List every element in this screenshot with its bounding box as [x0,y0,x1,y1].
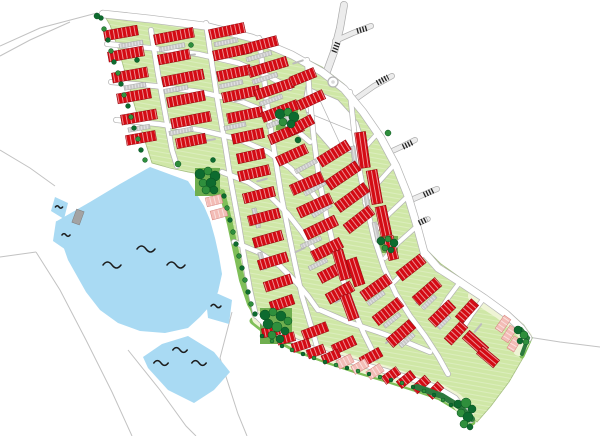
tree [175,161,181,167]
tree [260,334,264,338]
tree [287,120,295,128]
tree [195,169,205,179]
tree [411,385,415,389]
tree [345,366,349,370]
tree [517,338,523,344]
field-line [528,337,600,347]
masterplan-map [0,0,600,436]
tree [334,363,338,367]
tree [189,43,194,48]
tree [143,158,148,163]
tree [269,308,277,316]
tree [109,49,114,54]
tree [222,194,227,199]
field-line [0,22,70,56]
tree [234,242,239,247]
tree [132,126,137,131]
tree [367,372,371,376]
tree [211,158,216,163]
tree [102,27,107,32]
tree [382,245,388,251]
tree [422,389,426,393]
tree [136,137,141,142]
tree [280,344,284,348]
tree [263,319,273,329]
tree [276,335,284,343]
tree [390,239,398,247]
tree [240,266,245,271]
tree [389,378,393,382]
tree [279,118,287,126]
tree [237,254,242,259]
field-line [0,150,55,186]
tree [385,236,391,242]
tree [356,369,360,373]
tree [210,186,218,194]
tree [290,348,294,352]
tree [441,398,445,402]
tree [284,317,292,325]
tree [94,13,100,19]
tree [268,331,276,339]
tree [270,339,274,343]
tree [116,71,121,76]
tree [377,237,385,245]
tree [112,60,117,65]
tree [272,322,282,332]
tree [520,331,528,339]
tree [202,186,210,194]
tree [119,82,124,87]
tree [243,278,248,283]
roundabout-island [331,80,335,84]
tree [467,424,473,430]
tree [225,206,230,211]
tree [301,352,305,356]
tree [275,109,285,119]
tree [139,148,144,153]
tree [126,104,131,109]
field-line [0,252,36,257]
tree [378,375,382,379]
tree [385,130,391,136]
tree [129,115,134,120]
tree [388,247,394,253]
tree [253,312,258,317]
tree [295,137,301,143]
field-line [0,13,97,46]
tree [246,290,251,295]
tree [312,356,316,360]
tree [449,403,453,407]
tree [468,405,476,413]
special-building [205,194,223,207]
external-road [357,76,392,98]
masterplan-svg [0,0,600,436]
tree [106,38,111,43]
tree [523,339,529,345]
tree [323,360,327,364]
tree [260,310,270,320]
tree [400,381,404,385]
tree [231,230,236,235]
tree [432,393,436,397]
tree [249,302,254,307]
lake [143,336,230,403]
tree [135,58,140,63]
tree [122,93,127,98]
tree [281,327,289,335]
tree [454,400,462,408]
tree [228,218,233,223]
